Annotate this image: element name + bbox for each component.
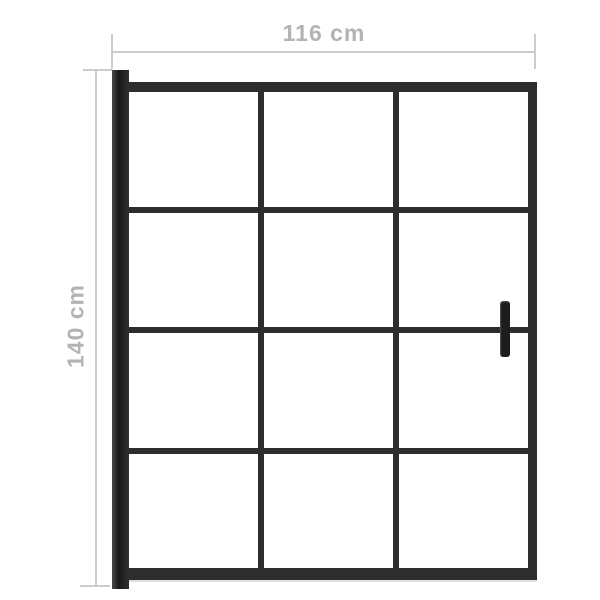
width-dimension-tick-left [111, 34, 113, 69]
width-dimension-tick-right [534, 34, 536, 69]
glass-pane [129, 333, 258, 448]
height-dimension-label: 140 cm [63, 284, 90, 368]
glass-pane [264, 92, 393, 207]
glass-pane [129, 92, 258, 207]
height-dimension-tick-bottom [80, 585, 110, 587]
glass-pane [399, 454, 528, 569]
glass-pane [264, 213, 393, 328]
width-dimension-label: 116 cm [112, 20, 536, 47]
width-dimension-line [112, 51, 536, 53]
glass-pane [129, 454, 258, 569]
wall-profile-bar [112, 70, 129, 589]
glass-pane [264, 333, 393, 448]
product-dimension-diagram: 116 cm 140 cm [0, 0, 600, 600]
door-frame-grid [129, 82, 537, 580]
door-handle [500, 301, 510, 357]
glass-pane [264, 454, 393, 569]
height-dimension-tick-top [83, 69, 112, 71]
height-dimension-line [95, 70, 97, 586]
glass-pane [399, 92, 528, 207]
glass-pane [129, 213, 258, 328]
